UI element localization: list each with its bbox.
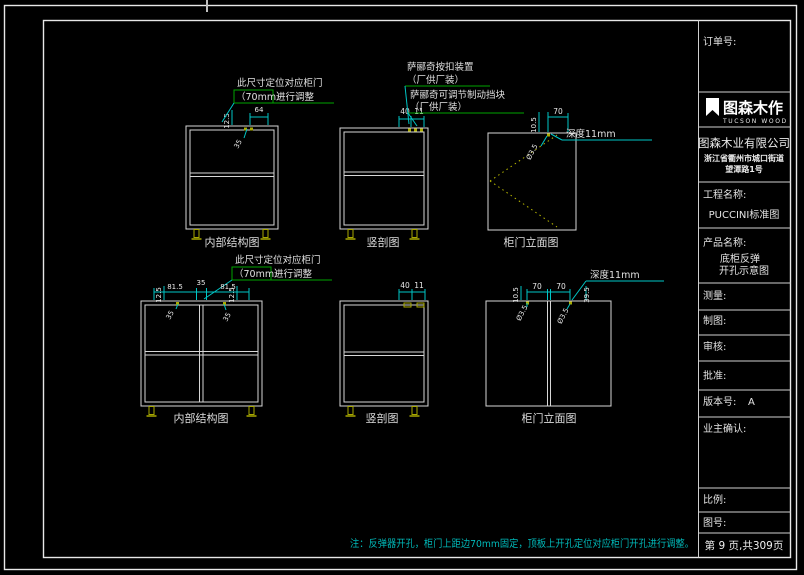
view-top-mid-section xyxy=(340,128,428,229)
approve-label: 批准: xyxy=(703,369,726,382)
bottom-right-hole-marks xyxy=(526,302,572,305)
dim-tl-vertical: 12.5 xyxy=(223,113,231,129)
version-label: 版本号: xyxy=(703,395,736,408)
dim-bl-diag1: 35 xyxy=(165,309,176,321)
scale-label: 比例: xyxy=(703,493,726,506)
drawing-no-label: 图号: xyxy=(703,517,726,529)
dim-bl-diag2: 35 xyxy=(222,311,233,323)
hw1-line1: 萨郦奇按扣装置 xyxy=(407,61,474,73)
project-name-value: PUCCINI标准图 xyxy=(709,209,780,221)
dim-br-v1: 10.5 xyxy=(512,287,520,303)
version-value: A xyxy=(748,397,755,408)
dim-tm-a: 40 xyxy=(400,107,410,116)
product-name-line2: 开孔示意图 xyxy=(719,264,769,277)
view-label-bottom-left: 内部结构图 xyxy=(174,411,229,425)
logo-name: 图森木作 xyxy=(723,99,783,117)
dim-tl-width: 64 xyxy=(255,106,264,114)
top-left-dimension-lines xyxy=(232,110,268,138)
drawing-canvas: 订单号: 图森木作 TUCSON WOOD 图森木业有限公司 浙江省衢州市城口街… xyxy=(0,0,804,575)
dim-br-hole1: Ø3.5 xyxy=(515,304,530,322)
dim-tl-diag: 35 xyxy=(233,138,244,150)
page-indicator: 第 9 页,共309页 xyxy=(705,539,784,552)
tucson-logo-icon xyxy=(706,98,719,116)
fit-note-line2: 进行调整 xyxy=(276,91,315,103)
product-name-label: 产品名称: xyxy=(703,236,746,249)
hw1-line2: （厂供厂装） xyxy=(407,74,464,86)
callout-depth-top: 深度11mm xyxy=(551,128,652,140)
bottom-mid-dimension-lines xyxy=(399,289,425,300)
dim-bm-b: 11 xyxy=(414,281,424,290)
dim-bl-e1: 81.5 xyxy=(167,283,183,291)
view-bottom-mid-section xyxy=(340,301,428,406)
dim-br-w1: 70 xyxy=(532,282,542,291)
depth-note-bottom: 深度11mm xyxy=(590,269,640,281)
hw1-leader xyxy=(405,86,409,124)
top-right-dimension-lines xyxy=(539,112,568,146)
dim-bm-a: 40 xyxy=(400,281,410,290)
company-address-line2: 望潭路1号 xyxy=(725,164,763,174)
drawing-note: 注：反弹器开孔，柜门上距边70mm固定，顶板上开孔定位对应柜门开孔进行调整。 xyxy=(350,537,694,550)
logo-subtitle: TUCSON WOOD xyxy=(722,118,788,125)
project-name-label: 工程名称: xyxy=(703,188,746,201)
callout-hardware-2: 萨郦奇可调节制动挡块 （厂供厂装） xyxy=(408,89,524,126)
fit-note-line1: 此尺寸定位对应柜门 xyxy=(237,77,323,89)
view-top-left-internal-structure xyxy=(186,126,278,229)
company-address-line1: 浙江省衢州市城口街道 xyxy=(704,153,784,163)
top-right-hole-mark xyxy=(547,134,550,137)
view-label-bottom-right: 柜门立面图 xyxy=(522,411,577,425)
product-name-line1: 底柜反弹 xyxy=(720,252,760,265)
company-logo: 图森木作 TUCSON WOOD xyxy=(706,98,788,125)
dim-tr-vertical: 10.5 xyxy=(530,117,538,133)
draft-label: 制图: xyxy=(703,314,726,327)
depth-note-top: 深度11mm xyxy=(566,128,616,140)
top-mid-hardware-marks xyxy=(408,129,423,132)
fit-note-b-line2: 进行调整 xyxy=(274,268,313,280)
measure-label: 测量: xyxy=(703,289,726,302)
cad-sheet: { "colors": { "background": "#000000", "… xyxy=(0,0,804,575)
audit-label: 审核: xyxy=(703,340,726,353)
bottom-right-dimension-lines xyxy=(521,286,586,309)
owner-confirm-label: 业主确认: xyxy=(703,422,746,435)
hw2-line1: 萨郦奇可调节制动挡块 xyxy=(410,89,506,101)
dim-tr-width: 70 xyxy=(553,107,563,116)
dim-bl-mid: 35 xyxy=(197,279,206,287)
view-label-top-right: 柜门立面图 xyxy=(504,235,559,249)
view-bottom-left-internal-structure xyxy=(141,301,262,406)
dim-bl-v2: 12.5 xyxy=(228,287,236,303)
company-name: 图森木业有限公司 xyxy=(698,136,790,150)
view-label-top-left: 内部结构图 xyxy=(205,235,260,249)
view-label-bottom-mid: 竖剖图 xyxy=(366,411,399,425)
callout-fit-top: 此尺寸定位对应柜门 （70mm） 进行调整 xyxy=(222,77,334,122)
door-swing-dashed-lines xyxy=(490,135,557,227)
view-label-top-mid: 竖剖图 xyxy=(367,235,400,249)
fit-note-b-line1: 此尺寸定位对应柜门 xyxy=(235,254,321,266)
dim-bl-v1: 12.5 xyxy=(155,287,163,303)
dim-br-v2: 39.5 xyxy=(583,287,591,303)
dim-br-w2: 70 xyxy=(556,282,566,291)
view-bottom-right-door-elevation xyxy=(486,301,611,406)
order-number-label: 订单号: xyxy=(703,36,736,48)
dim-br-hole2: Ø3.5 xyxy=(556,307,571,325)
hw2-line2: （厂供厂装） xyxy=(410,101,467,113)
dim-tr-hole: Ø3.5 xyxy=(525,143,540,161)
